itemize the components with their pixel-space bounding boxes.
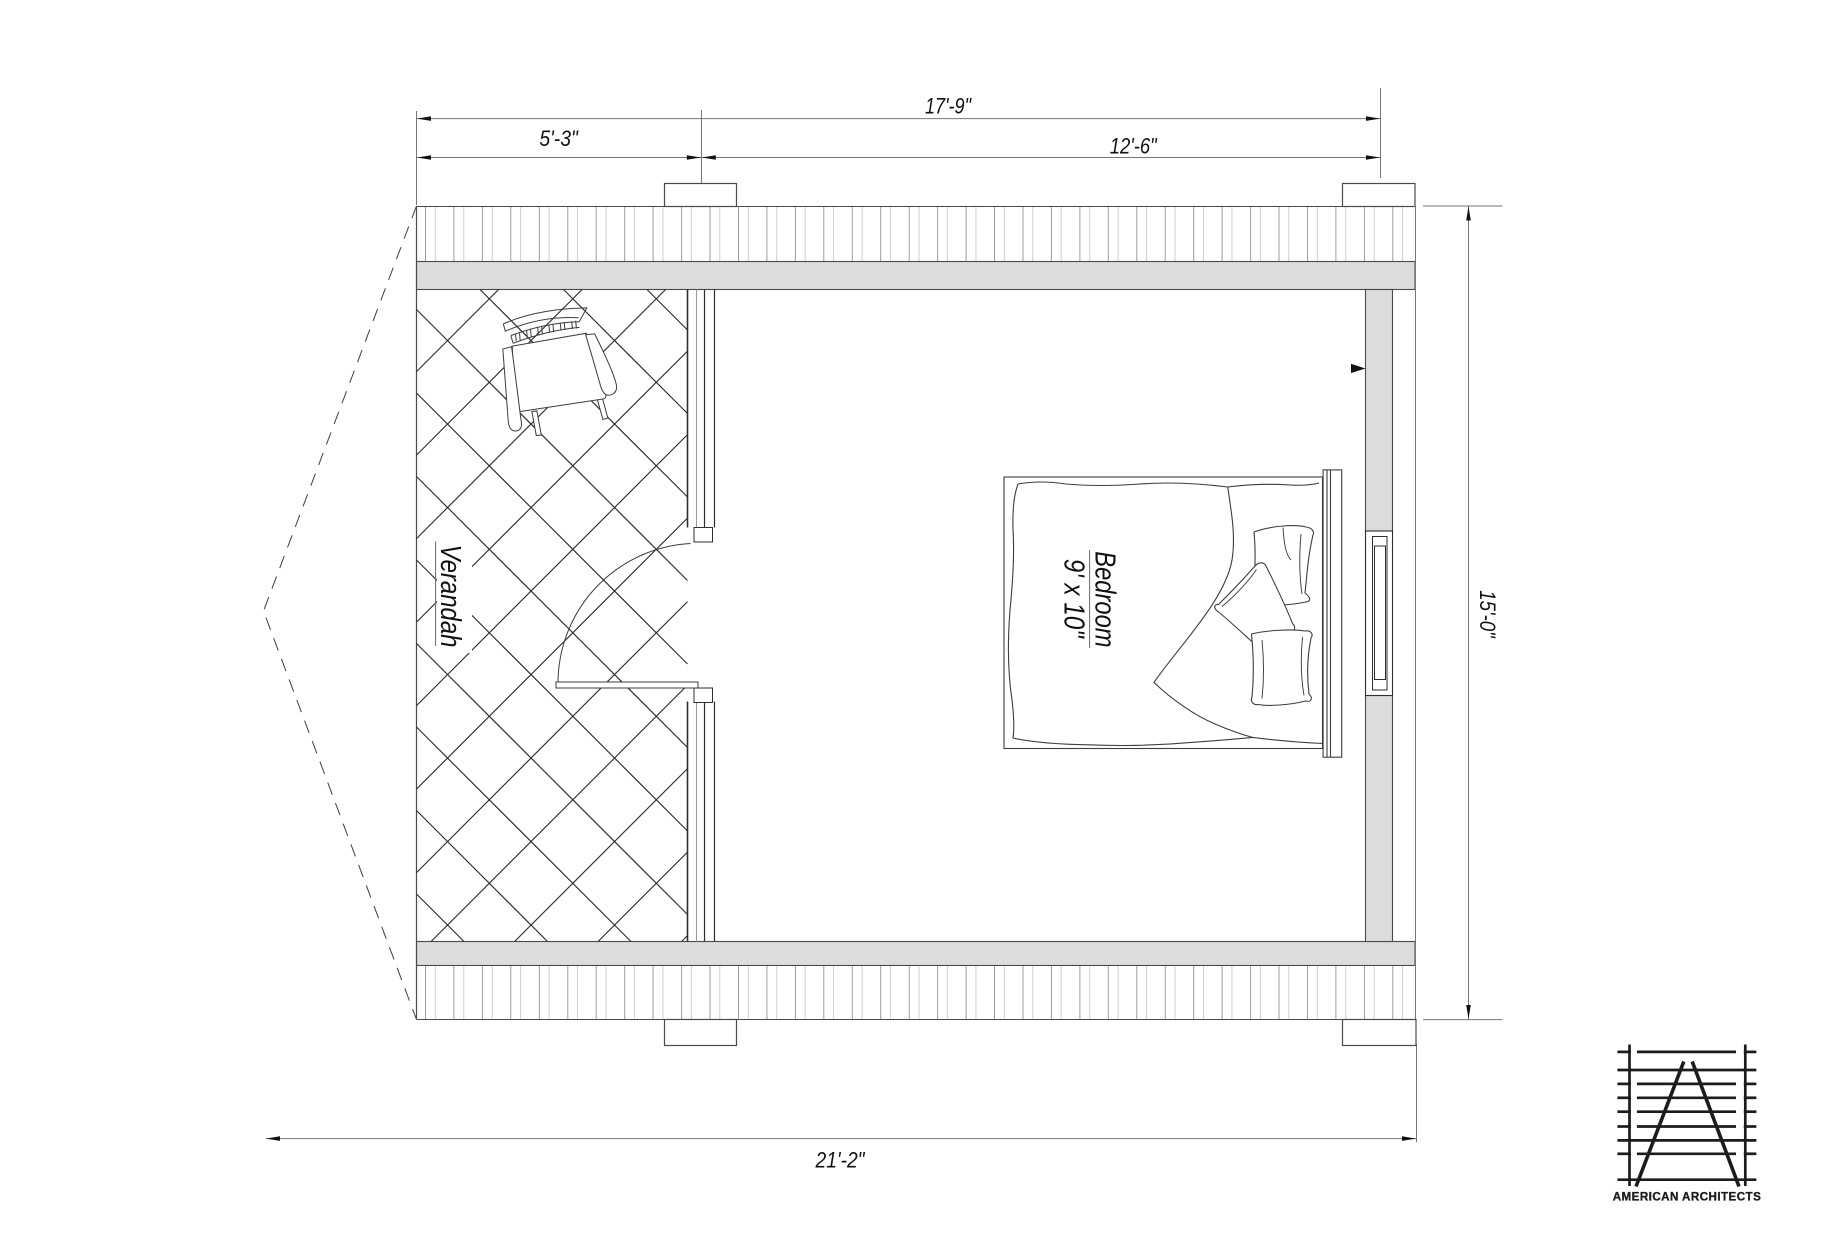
svg-text:15'-0": 15'-0" — [1475, 590, 1500, 638]
svg-text:AMERICAN ARCHITECTS: AMERICAN ARCHITECTS — [1613, 1191, 1762, 1204]
svg-text:17'-9": 17'-9" — [925, 94, 972, 119]
svg-text:12'-6": 12'-6" — [1110, 134, 1158, 159]
svg-text:21'-2": 21'-2" — [815, 1148, 866, 1173]
svg-text:Bedroom: Bedroom — [1089, 551, 1121, 647]
svg-text:5'-3": 5'-3" — [539, 126, 578, 151]
svg-text:9' x 10": 9' x 10" — [1058, 559, 1090, 640]
svg-text:Verandah: Verandah — [434, 545, 466, 648]
